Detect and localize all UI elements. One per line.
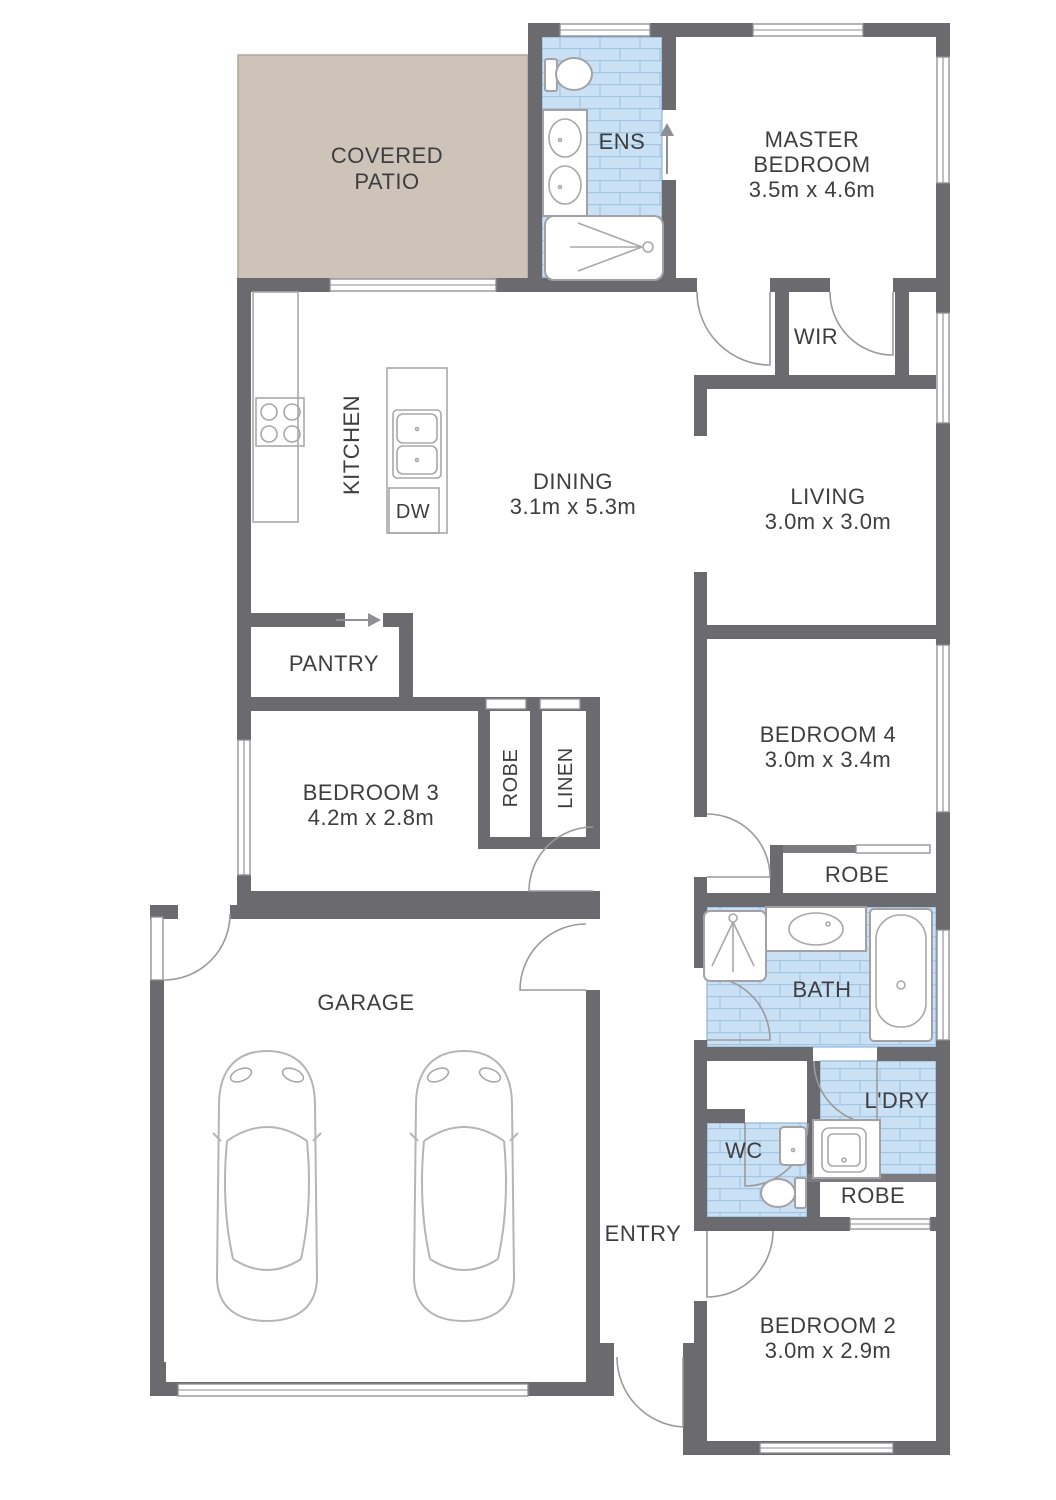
label-master-bedroom-dims: 3.5m x 4.6m [749, 177, 876, 202]
label-bedroom2-dims: 3.0m x 2.9m [765, 1338, 892, 1363]
label-ensuite: ENS [599, 129, 646, 154]
label-bedroom2-robe: ROBE [841, 1183, 905, 1208]
bedroom4-robe-door [856, 845, 930, 853]
label-bedroom4-robe: ROBE [825, 862, 889, 887]
label-entry: ENTRY [605, 1221, 682, 1246]
label-laundry: L'DRY [865, 1088, 930, 1113]
label-bedroom3: BEDROOM 3 [303, 780, 440, 805]
floor-plan-drawing: COVERED PATIO ENS MASTER BEDROOM 3.5m x … [0, 0, 1056, 1500]
label-covered-patio-line1: COVERED [331, 143, 443, 168]
wc-toilet-symbol [761, 1178, 806, 1208]
wir-door [830, 292, 893, 355]
ensuite-toilet-symbol [545, 58, 592, 91]
label-kitchen: KITCHEN [339, 395, 364, 495]
kitchen-sink-symbol [393, 410, 441, 478]
bathtub-symbol [870, 909, 932, 1041]
label-dining-dims: 3.1m x 5.3m [510, 494, 637, 519]
label-dining: DINING [533, 469, 613, 494]
label-garage: GARAGE [317, 990, 414, 1015]
label-living-dims: 3.0m x 3.0m [765, 509, 892, 534]
label-covered-patio-line2: PATIO [354, 169, 419, 194]
ensuite-vanity-symbol [543, 110, 587, 216]
label-living: LIVING [790, 484, 865, 509]
label-linen: LINEN [555, 747, 577, 808]
bedroom2-door [707, 1231, 773, 1297]
label-pantry: PANTRY [289, 651, 379, 676]
label-bedroom3-dims: 4.2m x 2.8m [308, 805, 435, 830]
label-wir: WIR [794, 324, 838, 349]
ensuite-shower-symbol [545, 216, 663, 280]
label-bath: BATH [792, 977, 851, 1002]
label-wc: WC [725, 1138, 763, 1163]
bath-vanity-symbol [766, 907, 866, 951]
label-master-bedroom-line2: BEDROOM [753, 152, 870, 177]
label-bedroom2: BEDROOM 2 [760, 1313, 897, 1338]
car-symbol-left [213, 1051, 321, 1321]
floor-plan: COVERED PATIO ENS MASTER BEDROOM 3.5m x … [0, 0, 1056, 1500]
bath-shower-symbol [704, 911, 766, 981]
label-dishwasher: DW [396, 501, 430, 523]
front-door [617, 1357, 683, 1427]
label-bedroom4: BEDROOM 4 [760, 722, 897, 747]
wc-basin-symbol [780, 1127, 806, 1165]
label-master-bedroom-line1: MASTER [765, 127, 860, 152]
garage-side-door [164, 914, 230, 980]
garage-internal-door [520, 924, 586, 990]
car-symbol-right [410, 1051, 518, 1321]
label-bedroom3-robe: ROBE [500, 749, 522, 808]
master-bedroom-door [697, 292, 770, 365]
label-bedroom4-dims: 3.0m x 3.4m [765, 747, 892, 772]
kitchen-bench [253, 292, 304, 522]
bedroom4-door [707, 814, 770, 877]
laundry-tub-symbol [813, 1120, 880, 1178]
